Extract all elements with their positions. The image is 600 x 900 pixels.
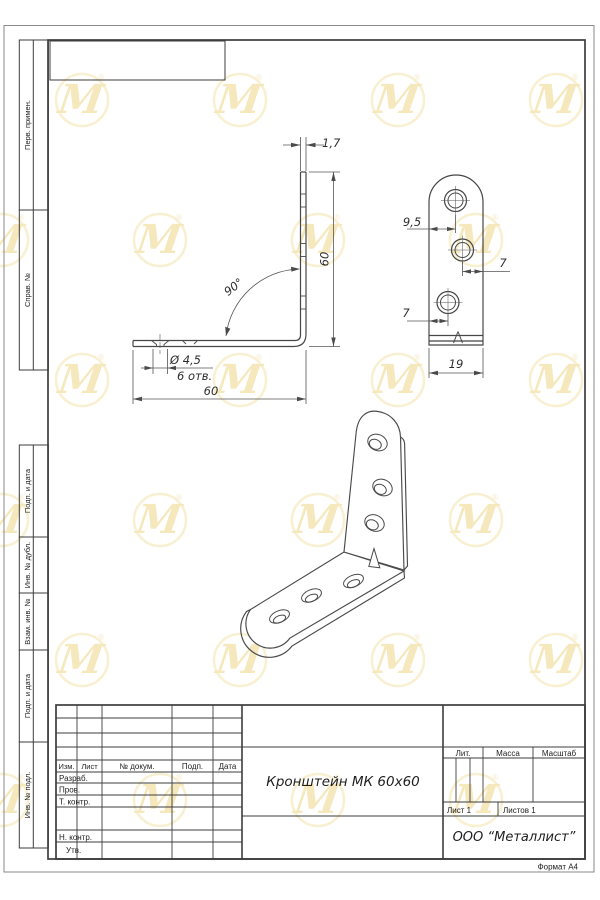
row-prov: Пров. [59,786,80,795]
col-izm: Изм. [58,762,74,771]
brand-watermark-icon [132,773,186,826]
dim-thickness: 1,7 [322,136,341,150]
col-list: Лист [81,762,98,771]
brand-watermark-icon [370,633,424,686]
dim-hole-offset-right: 7 [499,256,507,270]
col-data: Дата [219,762,237,771]
brand-watermark-icon [132,493,186,546]
company-name: ООО “Металлист” [453,830,576,845]
brand-watermark-icon [370,73,424,126]
drawing-sheet: M ® Перв. примен. Справ. № Подп. и дата … [0,0,600,900]
row-nkontr: Н. контр. [59,833,92,842]
brand-watermark-icon [212,353,266,406]
dim-width: 60 [204,384,219,398]
title-block: Изм. Лист № докум. Подп. Дата Разраб. Пр… [56,705,585,859]
dim-hole-dia: Ø 4,5 [169,353,201,367]
dim-hole-offset-left: 7 [402,306,410,320]
dim-hole-count: 6 отв. [177,369,212,383]
margin-labels: Перв. примен. Справ. № Подп. и дата Инв.… [23,100,32,818]
brand-watermark-icon [448,493,502,546]
scale-label: Масштаб [542,749,577,758]
brand-watermark-icon [54,633,108,686]
margin-label-podp-data-2: Подп. и дата [23,673,32,718]
row-tkontr: Т. контр. [59,798,90,807]
col-dokum: № докум. [119,762,154,771]
sheets-total: Листов 1 [503,806,536,815]
margin-label-perv-primen: Перв. примен. [23,100,32,150]
inner-frame [48,40,585,859]
part-title: Кронштейн МК 60х60 [266,774,420,790]
brand-watermark-icon [212,73,266,126]
side-view: 9,5 7 7 19 [402,175,510,378]
iso-leg-top-face [246,552,404,648]
brand-watermark-icon [54,353,108,406]
drawing-sheet-page: M ® Перв. примен. Справ. № Подп. и дата … [0,0,600,900]
format-label: Формат А4 [538,863,579,872]
brand-watermark-icon [54,73,108,126]
margin-label-podp-data-1: Подп. и дата [23,468,32,513]
margin-label-vzam-inv: Взам. инв. № [23,598,32,644]
brand-watermark-icon [290,493,344,546]
margin-label-inv-dubl: Инв. № дубл. [23,542,32,588]
dim-angle: 90° [221,275,246,299]
row-utv: Утв. [66,846,81,855]
row-razrab: Разраб. [59,774,88,783]
dim-side-width: 19 [449,357,464,371]
brand-watermark-icon [132,213,186,266]
margin-label-sprav-no: Справ. № [23,273,32,307]
dim-edge-to-hole: 9,5 [403,215,421,229]
margin-label-inv-podl: Инв. № подл. [23,772,32,819]
brand-watermark-grid [0,73,582,826]
outer-border [4,26,594,873]
mass-label: Масса [496,749,520,758]
sheet-no: Лист 1 [447,806,472,815]
margin-column [19,40,48,848]
dim-height: 60 [318,252,332,267]
brand-watermark-icon [528,633,582,686]
brand-watermark-icon [370,353,424,406]
brand-watermark-icon [528,73,582,126]
lit-label: Лит. [456,749,471,758]
brand-watermark-icon [528,353,582,406]
col-podp: Подп. [182,762,203,771]
